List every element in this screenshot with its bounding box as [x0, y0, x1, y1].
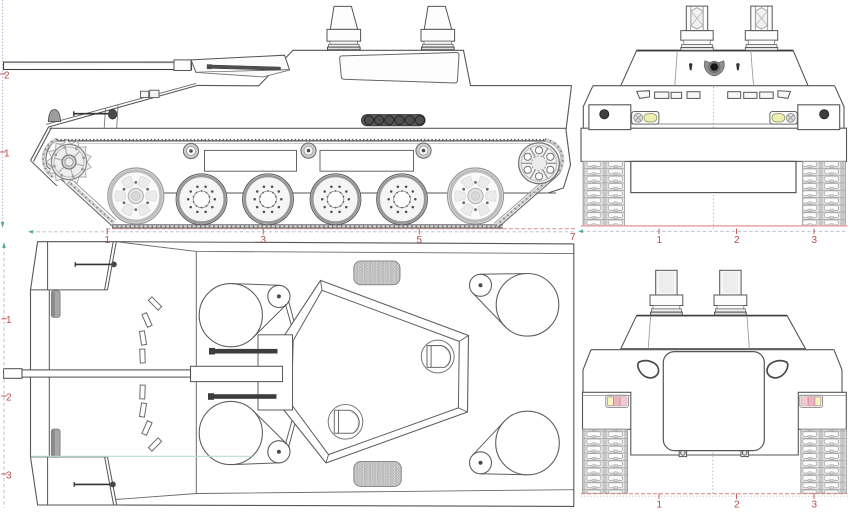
svg-text:1: 1 — [657, 235, 663, 246]
svg-text:1: 1 — [6, 315, 12, 326]
svg-text:1: 1 — [4, 149, 10, 160]
svg-text:3: 3 — [261, 235, 267, 246]
svg-text:2: 2 — [6, 393, 12, 404]
svg-text:3: 3 — [812, 500, 818, 511]
svg-text:2: 2 — [734, 235, 740, 246]
svg-text:7: 7 — [570, 232, 576, 243]
svg-text:3: 3 — [812, 235, 818, 246]
svg-text:1: 1 — [105, 235, 111, 246]
svg-text:5: 5 — [417, 235, 423, 246]
svg-text:3: 3 — [6, 471, 12, 482]
svg-text:1: 1 — [657, 500, 663, 511]
svg-text:2: 2 — [4, 71, 10, 82]
svg-text:2: 2 — [734, 500, 740, 511]
